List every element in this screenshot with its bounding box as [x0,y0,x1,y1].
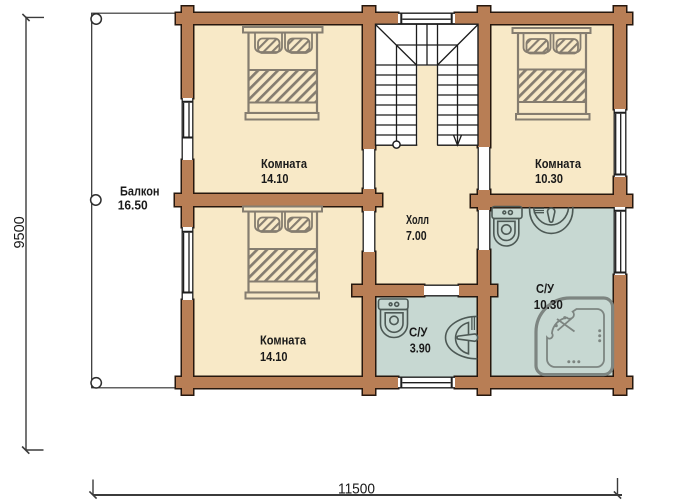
svg-text:16.50: 16.50 [118,197,148,212]
svg-text:7.00: 7.00 [406,228,427,243]
svg-text:Комната: Комната [535,156,582,171]
svg-text:Комната: Комната [260,333,307,348]
svg-text:9500: 9500 [11,216,28,248]
svg-text:Балкон: Балкон [120,183,160,198]
svg-text:3.90: 3.90 [410,341,431,356]
svg-text:Холл: Холл [406,212,429,227]
svg-text:С/У: С/У [536,281,555,296]
svg-text:11500: 11500 [338,480,375,497]
svg-text:Комната: Комната [261,156,308,171]
svg-text:10.30: 10.30 [535,171,563,186]
svg-text:14.10: 14.10 [261,171,289,186]
svg-text:С/У: С/У [409,325,428,340]
svg-text:14.10: 14.10 [260,349,288,364]
svg-text:10.30: 10.30 [534,297,563,312]
